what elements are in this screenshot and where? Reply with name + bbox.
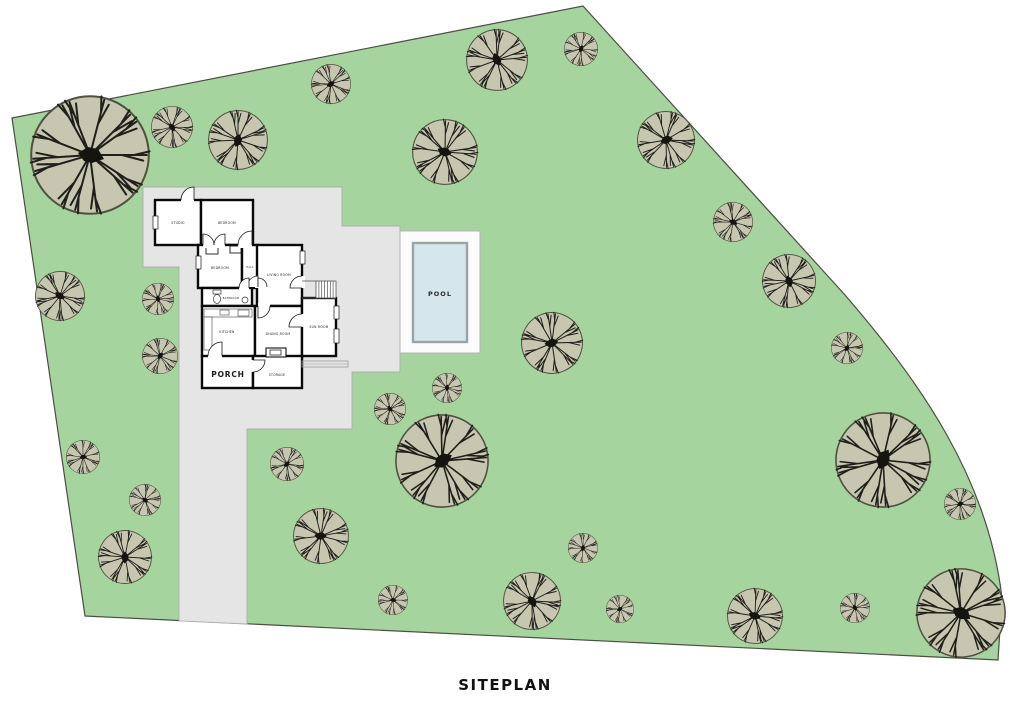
kitchen-counter xyxy=(204,317,212,350)
window xyxy=(300,251,305,264)
room-label: LIVING ROOM xyxy=(267,273,291,277)
siteplan-canvas: STUDIOBEDROOMBEDROOMHALLLIVING ROOMBATHR… xyxy=(0,0,1010,704)
room-label: BEDROOM xyxy=(211,266,229,270)
lot-boundary xyxy=(12,6,1002,660)
window xyxy=(334,306,339,319)
room-label: HALL xyxy=(246,265,254,269)
tree xyxy=(31,96,150,214)
room-label: SUN ROOM xyxy=(309,325,328,329)
toilet-tank xyxy=(213,290,221,294)
bath-sink xyxy=(242,297,248,303)
room-label: STORAGE xyxy=(269,373,285,377)
plan-title: SITEPLAN xyxy=(0,676,1010,694)
fireplace-inner xyxy=(270,350,281,355)
room-label: DINING ROOM xyxy=(266,332,291,336)
room-label: BEDROOM xyxy=(218,221,236,225)
tree xyxy=(378,585,408,615)
stove xyxy=(238,310,249,316)
pool-label: POOL xyxy=(428,290,452,298)
room-label: BATHROOM xyxy=(223,296,239,300)
window xyxy=(334,329,339,343)
room-label: PORCH xyxy=(211,370,244,379)
room-label: KITCHEN xyxy=(219,330,235,334)
room-label: STUDIO xyxy=(171,221,185,225)
window xyxy=(196,256,201,269)
kitchen-sink xyxy=(220,310,229,315)
window xyxy=(153,216,158,229)
toilet xyxy=(214,295,221,304)
